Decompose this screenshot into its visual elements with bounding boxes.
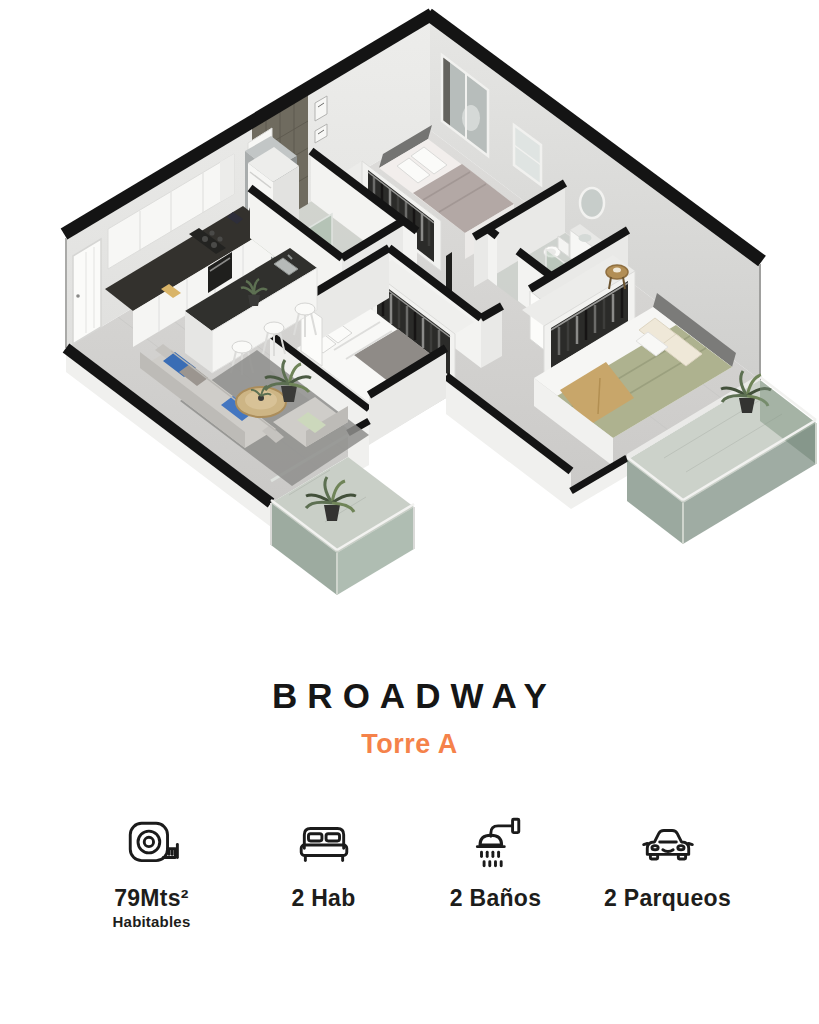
- mirror: [580, 188, 604, 218]
- feature-value: 2 Parqueos: [604, 885, 731, 912]
- car-icon: [639, 814, 697, 872]
- feature-parking: 2 Parqueos: [604, 814, 732, 912]
- feature-value: 2 Baños: [450, 885, 542, 912]
- coffee-table: [236, 386, 286, 417]
- entry-door: [73, 239, 101, 344]
- feature-value: 79Mts²: [114, 885, 189, 912]
- floor-plan-svg: [0, 0, 819, 662]
- feature-sublabel: Habitables: [113, 913, 191, 930]
- feature-bathrooms: 2 Baños: [432, 814, 560, 912]
- feature-area: 79Mts² Habitables: [88, 814, 216, 930]
- measuring-tape-icon: [123, 814, 181, 872]
- flyer-page: BROADWAY Torre A 79Mts² Habitables: [0, 0, 819, 1024]
- feature-row: 79Mts² Habitables 2 Hab: [0, 814, 819, 930]
- bed-icon: [295, 814, 353, 872]
- floor-plan-render: [0, 0, 819, 662]
- feature-bedrooms: 2 Hab: [260, 814, 388, 912]
- feature-value: 2 Hab: [291, 885, 355, 912]
- shower-icon: [467, 814, 525, 872]
- tower-subtitle: Torre A: [0, 729, 819, 760]
- page-title: BROADWAY: [0, 676, 819, 716]
